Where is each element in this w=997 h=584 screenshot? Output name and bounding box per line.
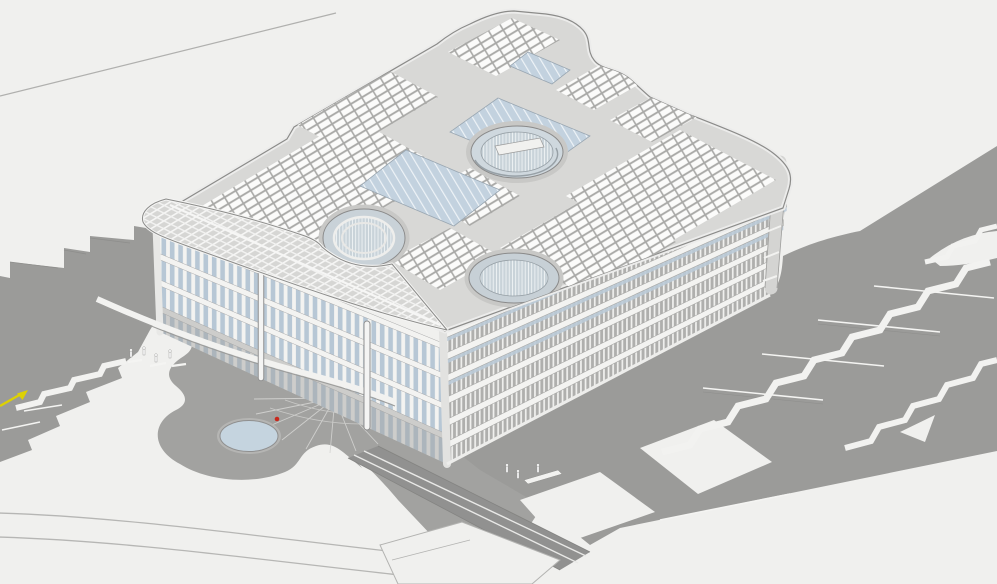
west-corner-round: [156, 226, 160, 332]
rendering-canvas: [0, 0, 997, 584]
model-viewport[interactable]: [0, 0, 997, 584]
red-point-marker: [275, 417, 280, 422]
central-oculus: [469, 124, 565, 180]
pond-lower: [217, 418, 281, 454]
south-corner-round: [443, 332, 447, 464]
